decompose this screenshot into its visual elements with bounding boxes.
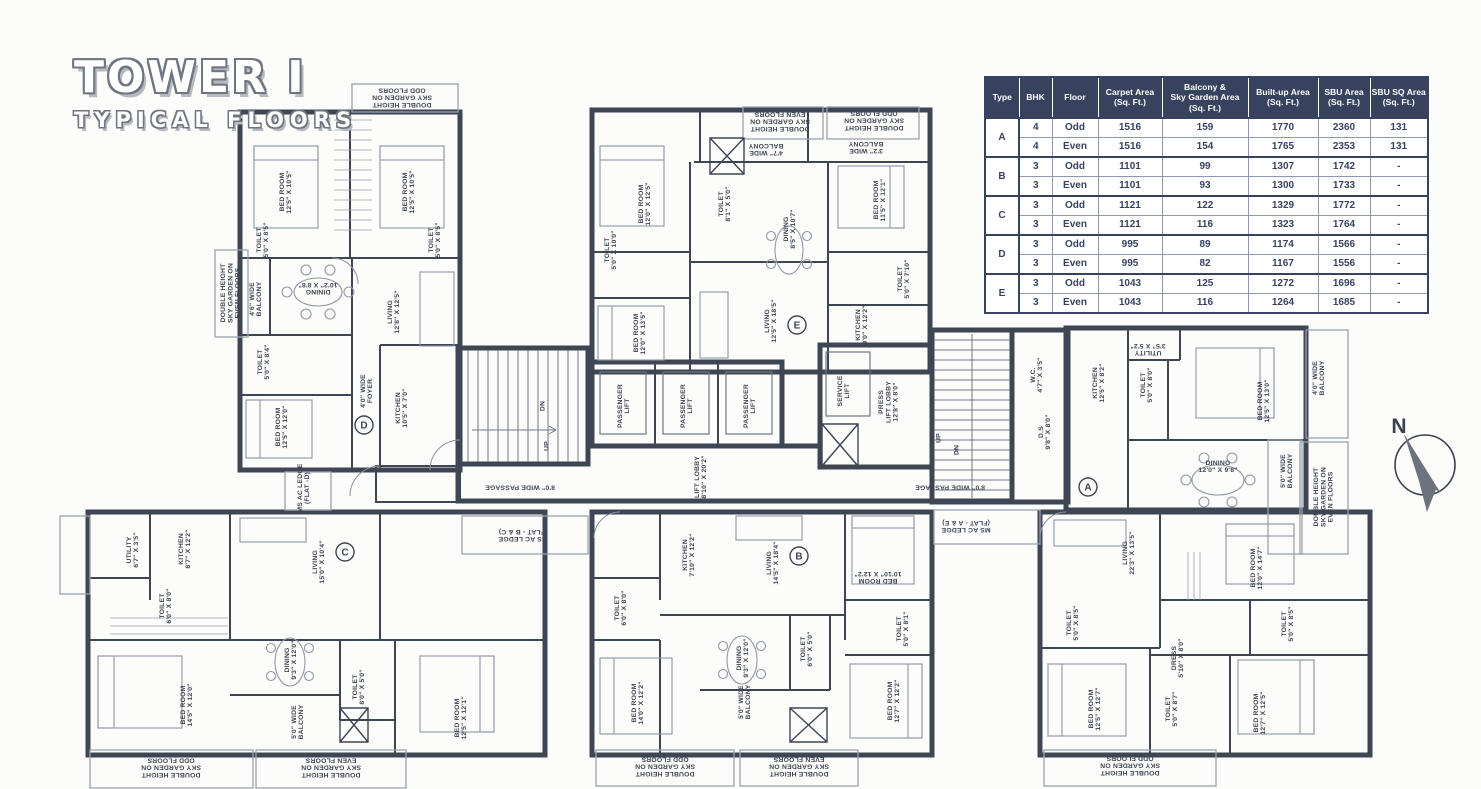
- table-cell: 1516: [1098, 137, 1162, 157]
- table-cell: 1566: [1318, 235, 1370, 255]
- table-cell: 995: [1098, 235, 1162, 255]
- plan-label: LIVING22'3" X 13'5": [1122, 531, 1136, 574]
- plan-label: DN: [539, 401, 546, 411]
- plan-label: 4'0" WIDEBALCONY: [1312, 360, 1326, 395]
- table-cell: 3: [1019, 274, 1052, 294]
- plan-label: MS AC LEDGE(FLAT - A & E): [941, 519, 990, 533]
- table-cell: 1300: [1248, 176, 1318, 196]
- table-cell: Odd: [1052, 274, 1098, 294]
- table-cell: 1323: [1248, 215, 1318, 235]
- table-cell: 3: [1019, 196, 1052, 216]
- plan-label: TOILET5'0" X 7'10": [897, 259, 911, 298]
- table-cell: 82: [1162, 254, 1248, 274]
- plan-label: KITCHEN8'7" X 12'2": [178, 529, 192, 568]
- table-cell: Odd: [1052, 235, 1098, 255]
- table-cell: 1043: [1098, 274, 1162, 294]
- table-cell: 2360: [1318, 118, 1370, 138]
- table-cell: Odd: [1052, 118, 1098, 138]
- plan-label: UP: [935, 433, 942, 443]
- table-cell: 1556: [1318, 254, 1370, 274]
- table-cell: 99: [1162, 157, 1248, 177]
- table-row: E3Odd104312512721696-: [985, 274, 1428, 294]
- plan-label: TOILET6'0" X 8'0": [614, 590, 628, 625]
- table-header-cell: Carpet Area (Sq. Ft.): [1098, 77, 1162, 118]
- table-cell: 1770: [1248, 118, 1318, 138]
- table-row: 3Even112111613231764-: [985, 215, 1428, 235]
- plan-label: TOILET5'0" X 10'0": [604, 230, 618, 269]
- floor-plan-sheet: TOWER I TYPICAL FLOORS TypeBHKFloorCarpe…: [0, 0, 1481, 789]
- table-cell: 116: [1162, 293, 1248, 313]
- plan-label: 5'0" WIDEBALCONY: [738, 684, 752, 719]
- plan-label: BED ROOM12'5" X 10'5": [402, 170, 416, 213]
- svg-text:C: C: [341, 547, 348, 558]
- table-cell: 116: [1162, 215, 1248, 235]
- table-header-cell: Balcony & Sky Garden Area (Sq. Ft.): [1162, 77, 1248, 118]
- plan-label: DINING8'5" X 10'7": [783, 209, 797, 248]
- plan-label: 4'7" WIDEBALCONY: [748, 142, 783, 156]
- table-row: A4Odd151615917702360131: [985, 118, 1428, 138]
- table-cell: 1772: [1318, 196, 1370, 216]
- table-cell: Even: [1052, 176, 1098, 196]
- plan-label: TOILET6'0" X 5'0": [800, 631, 814, 666]
- plan-label: TOILET5'0" X 8'7": [1165, 691, 1179, 726]
- plan-label: KITCHEN7'10" X 12'2": [682, 533, 696, 576]
- table-cell: 3: [1019, 157, 1052, 177]
- table-cell: 1696: [1318, 274, 1370, 294]
- plan-label: DRESS5'10" X 8'0": [1171, 638, 1185, 677]
- type-cell: A: [985, 118, 1019, 157]
- plan-label: PRESSLIFT LOBBY12'8" X 8'0": [878, 381, 899, 423]
- table-cell: Even: [1052, 254, 1098, 274]
- plan-label: DOUBLE HEIGHTSKY GARDEN ONEVEN FLOORS: [769, 755, 829, 776]
- table-header-row: TypeBHKFloorCarpet Area (Sq. Ft.)Balcony…: [985, 77, 1428, 118]
- type-cell: E: [985, 274, 1019, 313]
- table-cell: 2353: [1318, 137, 1370, 157]
- table-row: B3Odd11019913071742-: [985, 157, 1428, 177]
- table-cell: 1101: [1098, 157, 1162, 177]
- table-cell: Even: [1052, 293, 1098, 313]
- table-header-cell: Type: [985, 77, 1019, 118]
- plan-label: LIFT LOBBY8'10" X 20'2": [694, 455, 708, 498]
- svg-text:A: A: [1084, 482, 1091, 493]
- table-row: 3Even11019313001733-: [985, 176, 1428, 196]
- plan-label: LIVING14'5" X 18'4": [766, 541, 780, 584]
- table-row: 3Even9958211671556-: [985, 254, 1428, 274]
- table-cell: 1742: [1318, 157, 1370, 177]
- table-cell: Even: [1052, 215, 1098, 235]
- plan-label: DOUBLE HEIGHTSKY GARDEN ONODD FLOORS: [141, 756, 201, 777]
- plan-label: PASSENGERLIFT: [617, 384, 631, 428]
- tower-title: TOWER I: [74, 56, 357, 100]
- plan-label: TOILET5'0" X 8'5": [256, 222, 270, 257]
- plan-label: TOILET5'0" X 8'1": [896, 611, 910, 646]
- table-header-cell: Built-up Area (Sq. Ft.): [1248, 77, 1318, 118]
- table-cell: 1733: [1318, 176, 1370, 196]
- plan-label: BED ROOM12'7" X 12'2": [887, 679, 901, 722]
- plan-label: DOUBLE HEIGHTSKY GARDEN ONODD FLOORS: [1100, 754, 1160, 775]
- plan-label: DINING12'0" X 9'8": [1198, 460, 1237, 474]
- plan-label: TOILET5'0" X 8'5": [1066, 605, 1080, 640]
- plan-label: 5'0" WIDEBALCONY: [291, 704, 305, 739]
- table-cell: 4: [1019, 137, 1052, 157]
- table-cell: Even: [1052, 137, 1098, 157]
- table-cell: 93: [1162, 176, 1248, 196]
- table-row: 4Even151615417652353131: [985, 137, 1428, 157]
- table-cell: -: [1370, 254, 1428, 274]
- plan-label: PASSENGERLIFT: [680, 384, 694, 428]
- table-cell: 1764: [1318, 215, 1370, 235]
- plan-label: MS AC LEDGE(FLAT - B & C): [498, 528, 547, 542]
- plan-label: DINING9'3" X 12'0": [284, 640, 298, 679]
- table-cell: 1101: [1098, 176, 1162, 196]
- table-row: C3Odd112112213291772-: [985, 196, 1428, 216]
- plan-label: LIVING15'0" X 10'4": [312, 540, 326, 583]
- table-cell: 3: [1019, 215, 1052, 235]
- table-cell: Odd: [1052, 157, 1098, 177]
- table-cell: -: [1370, 293, 1428, 313]
- type-cell: D: [985, 235, 1019, 274]
- table-cell: -: [1370, 157, 1428, 177]
- plan-label: KITCHEN10'5" X 7'0": [395, 388, 409, 427]
- plan-label: TOILET6'0" X 8'0": [159, 588, 173, 623]
- plan-label: DOUBLE HEIGHTSKY GARDEN ONEVEN FLOORS: [301, 756, 361, 777]
- table-cell: 3: [1019, 235, 1052, 255]
- table-cell: 131: [1370, 118, 1428, 138]
- table-cell: 159: [1162, 118, 1248, 138]
- plan-label: TOILET5'0" X 8'5": [1281, 606, 1295, 641]
- area-table: TypeBHKFloorCarpet Area (Sq. Ft.)Balcony…: [984, 76, 1429, 314]
- plan-label: BED ROOM10'10" X 12'2": [854, 570, 901, 584]
- unit-circle-d: D: [355, 416, 373, 434]
- table-cell: 4: [1019, 118, 1052, 138]
- plan-label: BED ROOM12'5" X 12'1": [454, 696, 468, 739]
- table-header-cell: SBU SQ Area (Sq. Ft.): [1370, 77, 1428, 118]
- unit-circle-c: C: [336, 543, 354, 561]
- plan-label: LIVING12'5" X 18'5": [764, 299, 778, 342]
- table-cell: 1272: [1248, 274, 1318, 294]
- plan-label: 4'0" WIDEFOYER: [360, 374, 374, 408]
- table-cell: -: [1370, 196, 1428, 216]
- table-cell: 1174: [1248, 235, 1318, 255]
- plan-label: PASSENGERLIFT: [743, 384, 757, 428]
- plan-label: BED ROOM14'5" X 12'0": [180, 683, 194, 726]
- plan-label: DOUBLE HEIGHTSKY GARDEN ONODD FLOORS: [844, 109, 904, 130]
- table-cell: -: [1370, 274, 1428, 294]
- plan-label: DOUBLE HEIGHTSKY GARDEN ONEVEN FLOORS: [220, 263, 241, 323]
- plan-label: BED ROOM12'7" X 12'5": [1253, 691, 1267, 734]
- table-cell: 1765: [1248, 137, 1318, 157]
- plan-label: UP: [543, 441, 550, 451]
- unit-circle-e: E: [788, 316, 806, 334]
- table-header-cell: Floor: [1052, 77, 1098, 118]
- table-cell: 154: [1162, 137, 1248, 157]
- table-cell: 125: [1162, 274, 1248, 294]
- plan-label: SERVICELIFT: [837, 375, 851, 406]
- plan-label: DOUBLE HEIGHTSKY GARDEN ONODD FLOORS: [635, 755, 695, 776]
- plan-label: 5'0" WIDEBALCONY: [1280, 453, 1294, 488]
- svg-text:B: B: [795, 551, 802, 562]
- sheet-title: TOWER I TYPICAL FLOORS: [74, 56, 357, 132]
- plan-label: W.C.4'7" X 3'5": [1030, 357, 1044, 392]
- table-cell: 131: [1370, 137, 1428, 157]
- table-cell: 1329: [1248, 196, 1318, 216]
- unit-circle-b: B: [790, 547, 808, 565]
- plan-label: BED ROOM12'0" X 12'5": [638, 182, 652, 225]
- unit-circle-a: A: [1079, 478, 1097, 496]
- plan-label: 4'6" WIDEBALCONY: [249, 281, 263, 316]
- table-row: D3Odd9958911741566-: [985, 235, 1428, 255]
- plan-label: TOILET8'0" X 5'0": [352, 669, 366, 704]
- table-cell: 3: [1019, 293, 1052, 313]
- table-cell: -: [1370, 215, 1428, 235]
- area-table-wrap: TypeBHKFloorCarpet Area (Sq. Ft.)Balcony…: [984, 76, 1429, 314]
- table-row: 3Even104311612641685-: [985, 293, 1428, 313]
- svg-text:E: E: [794, 320, 801, 331]
- table-cell: 1167: [1248, 254, 1318, 274]
- table-cell: -: [1370, 235, 1428, 255]
- plan-label: DN: [953, 445, 960, 455]
- plan-label: BED ROOM12'0" X 13'5": [633, 311, 647, 354]
- north-compass: N: [1391, 415, 1455, 512]
- plan-label: KITCHEN12'5" X 8'2": [1092, 363, 1106, 402]
- plan-label: BED ROOM12'0" X 14'7": [1250, 546, 1264, 589]
- table-cell: 3: [1019, 254, 1052, 274]
- plan-label: BED ROOM12'5" X 10'5": [279, 170, 293, 213]
- plan-label: TOILET8'1" X 5'0": [718, 186, 732, 221]
- plan-label: BED ROOM12'5" X 13'0": [1257, 379, 1271, 422]
- plan-label: BED ROOM12'5" X 12'7": [1088, 687, 1102, 730]
- plan-label: 8'0" WIDE PASSAGE: [915, 484, 985, 491]
- plan-label: BED ROOM12'5" X 12'0": [275, 405, 289, 448]
- plan-label: DOUBLE HEIGHTSKY GARDEN ONODD FLOORS: [372, 86, 432, 107]
- table-header-cell: SBU Area (Sq. Ft.): [1318, 77, 1370, 118]
- table-cell: 3: [1019, 176, 1052, 196]
- table-cell: 1264: [1248, 293, 1318, 313]
- type-cell: C: [985, 196, 1019, 235]
- table-cell: 1307: [1248, 157, 1318, 177]
- svg-text:D: D: [360, 420, 367, 431]
- plan-label: DOUBLE HEIGHTSKY GARDEN ONEVEN FLOORS: [1313, 467, 1334, 527]
- plan-label: UTILITY3'5" X 5'2": [1130, 342, 1165, 356]
- table-cell: 1121: [1098, 215, 1162, 235]
- plan-label: BED ROOM14'0" X 12'2": [631, 681, 645, 724]
- table-cell: 1043: [1098, 293, 1162, 313]
- table-cell: 122: [1162, 196, 1248, 216]
- plan-label: DOUBLE HEIGHTSKY GARDEN ONEVEN FLOORS: [750, 110, 810, 131]
- plan-label: KITCHEN9'0" X 12'2": [855, 305, 869, 344]
- plan-label: DINING9'3" X 12'0": [736, 638, 750, 677]
- plan-label: TOILET5'0" X 8'4": [257, 344, 271, 379]
- plan-label: TOILET5'0" X 8'0": [1140, 367, 1154, 402]
- plan-label: DINING10'2" X 8'8": [298, 281, 337, 295]
- type-cell: B: [985, 157, 1019, 196]
- table-header-cell: BHK: [1019, 77, 1052, 118]
- plan-label: 3'2" WIDEBALCONY: [848, 140, 883, 154]
- table-cell: Odd: [1052, 196, 1098, 216]
- plan-label: UTILITY6'7" X 3'5": [126, 532, 140, 567]
- table-cell: 1685: [1318, 293, 1370, 313]
- plan-label: TOILET5'0" X 8'5": [428, 222, 442, 257]
- tower-subtitle: TYPICAL FLOORS: [74, 108, 357, 132]
- plan-label: BED ROOM11'5" X 12'1": [873, 179, 887, 222]
- table-cell: 1121: [1098, 196, 1162, 216]
- table-cell: 995: [1098, 254, 1162, 274]
- table-cell: 1516: [1098, 118, 1162, 138]
- plan-label: 8'0" WIDE PASSAGE: [485, 484, 555, 491]
- plan-label: D.S9'8" X 8'0": [1038, 414, 1052, 449]
- table-cell: 89: [1162, 235, 1248, 255]
- table-cell: -: [1370, 176, 1428, 196]
- plan-label: LIVING12'8" X 12'5": [387, 290, 401, 333]
